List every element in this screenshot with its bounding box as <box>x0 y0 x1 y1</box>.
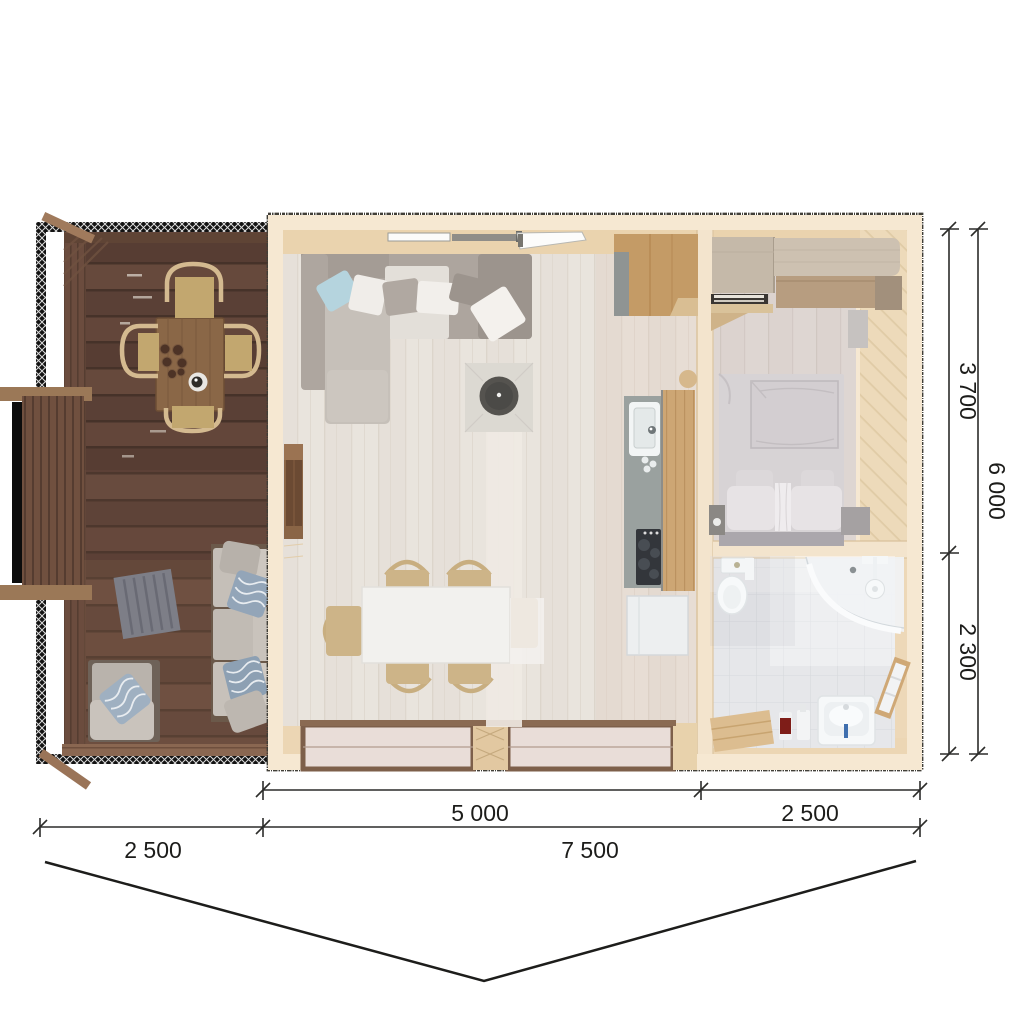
svg-text:3 700: 3 700 <box>955 362 981 420</box>
svg-text:2 300: 2 300 <box>955 623 981 681</box>
svg-text:2 500: 2 500 <box>781 800 839 826</box>
svg-text:7 500: 7 500 <box>561 837 619 863</box>
svg-text:6 000: 6 000 <box>984 462 1010 520</box>
svg-text:2 500: 2 500 <box>124 837 182 863</box>
svg-text:5 000: 5 000 <box>451 800 509 826</box>
